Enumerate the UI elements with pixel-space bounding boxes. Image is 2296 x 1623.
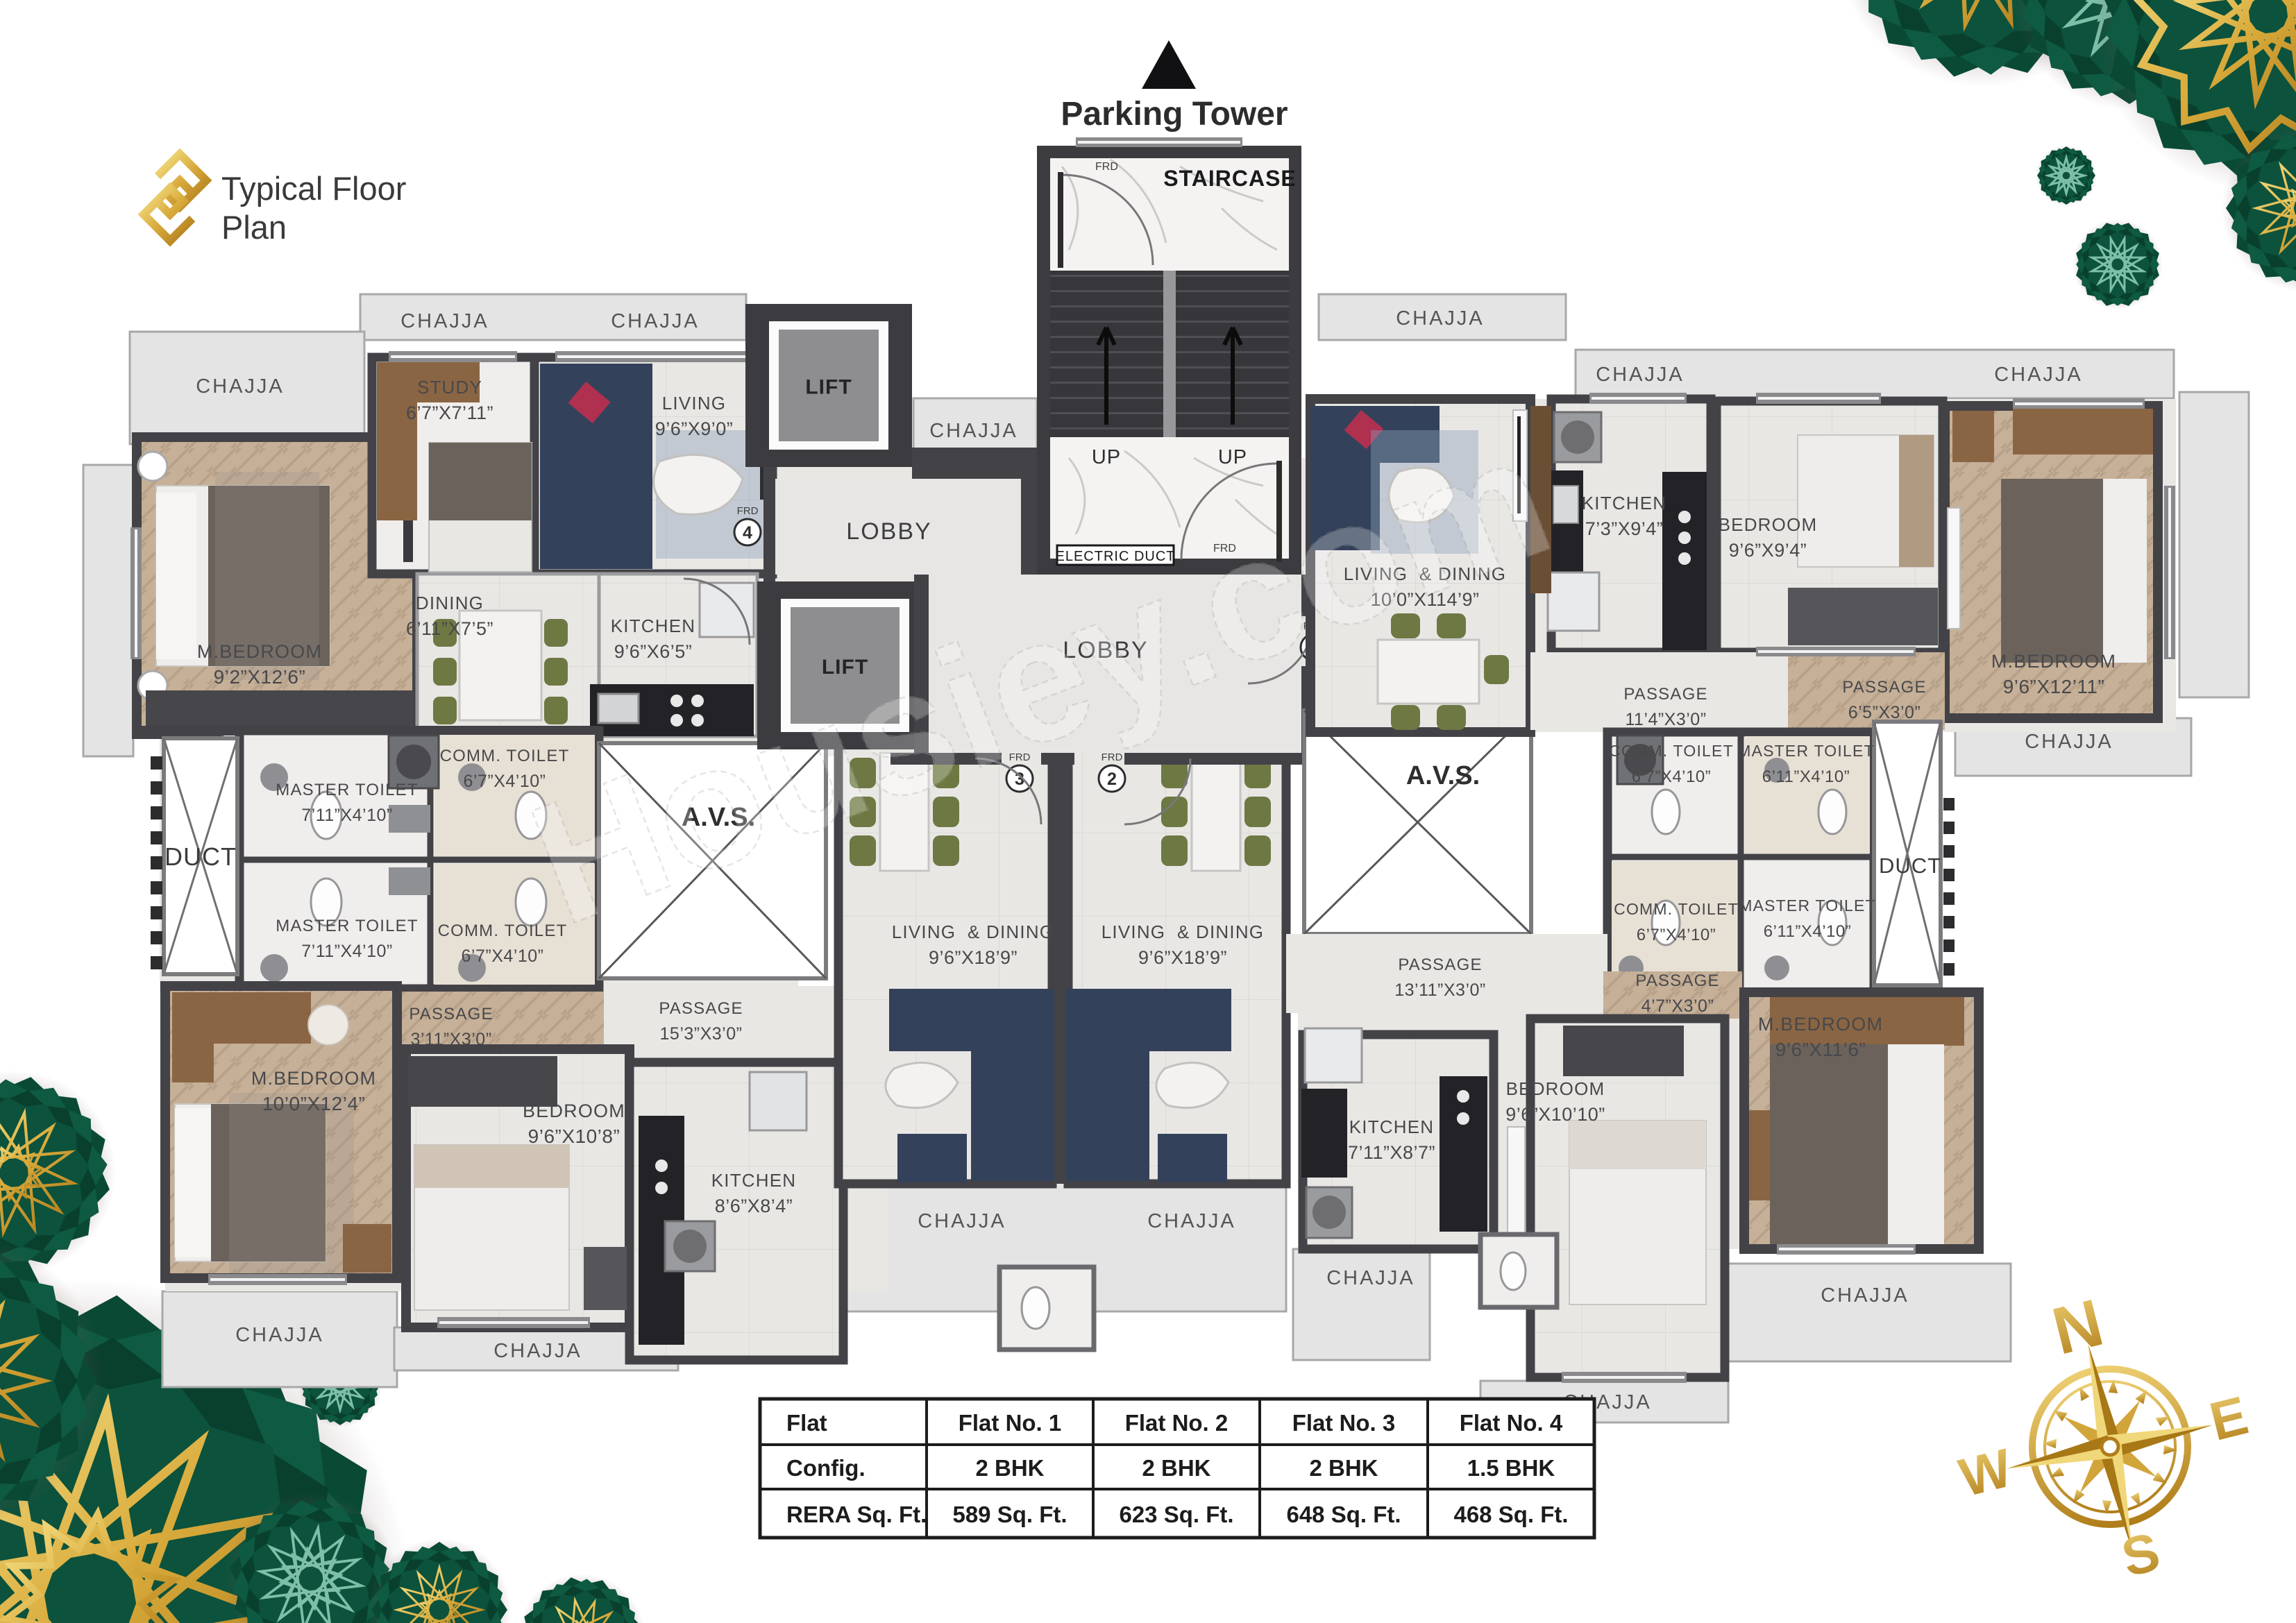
svg-text:BEDROOM: BEDROOM [1506, 1078, 1605, 1099]
svg-text:7’11”X8’7”: 7’11”X8’7” [1348, 1142, 1435, 1163]
svg-text:KITCHEN: KITCHEN [711, 1170, 797, 1191]
svg-text:9’6”X10’8”: 9’6”X10’8” [528, 1125, 621, 1147]
svg-text:RERA Sq. Ft.: RERA Sq. Ft. [786, 1502, 927, 1527]
svg-text:2 BHK: 2 BHK [1309, 1455, 1378, 1481]
svg-text:3’11”X3’0”: 3’11”X3’0” [410, 1030, 491, 1049]
svg-text:CHAJJA: CHAJJA [1147, 1210, 1236, 1232]
svg-text:9’6”X6’5”: 9’6”X6’5” [614, 641, 693, 662]
svg-text:CHAJJA: CHAJJA [235, 1324, 324, 1346]
svg-text:LIVING & DINING: LIVING & DINING [1101, 921, 1264, 942]
svg-text:FRD: FRD [737, 505, 759, 517]
svg-text:PASSAGE: PASSAGE [409, 1005, 493, 1023]
svg-text:Parking Tower: Parking Tower [1061, 96, 1288, 133]
svg-text:6’7”X4’10”: 6’7”X4’10” [1632, 767, 1711, 786]
svg-text:DUCT: DUCT [1879, 853, 1941, 878]
svg-text:COMM. TOILET: COMM. TOILET [1614, 900, 1739, 918]
svg-text:6’11”X7’5”: 6’11”X7’5” [406, 618, 493, 639]
svg-text:M.BEDROOM: M.BEDROOM [1991, 651, 2116, 672]
svg-text:STAIRCASE: STAIRCASE [1163, 166, 1297, 191]
svg-text:Flat No. 1: Flat No. 1 [959, 1410, 1062, 1436]
svg-text:COMM. TOILET: COMM. TOILET [1609, 742, 1734, 760]
svg-text:CHAJJA: CHAJJA [1326, 1267, 1415, 1289]
svg-text:CHAJJA: CHAJJA [929, 420, 1018, 442]
svg-text:LIVING & DINING: LIVING & DINING [892, 921, 1054, 942]
svg-text:MASTER TOILET: MASTER TOILET [1739, 897, 1876, 915]
svg-text:LIFT: LIFT [805, 376, 852, 399]
svg-text:9’6”X9’0”: 9’6”X9’0” [655, 418, 734, 439]
svg-text:9’6”X18’9”: 9’6”X18’9” [929, 947, 1018, 968]
svg-text:Plan: Plan [221, 209, 287, 246]
svg-text:PASSAGE: PASSAGE [1635, 971, 1719, 990]
svg-text:CHAJJA: CHAJJA [196, 375, 285, 398]
svg-text:623 Sq. Ft.: 623 Sq. Ft. [1119, 1502, 1233, 1527]
svg-text:9’6”X11’6”: 9’6”X11’6” [1775, 1039, 1866, 1060]
svg-text:9’6”X9’4”: 9’6”X9’4” [1729, 540, 1807, 561]
svg-text:648 Sq. Ft.: 648 Sq. Ft. [1286, 1502, 1401, 1527]
svg-text:6’7”X4’10”: 6’7”X4’10” [462, 946, 544, 966]
svg-text:PASSAGE: PASSAGE [1398, 955, 1482, 974]
svg-text:COMM. TOILET: COMM. TOILET [438, 921, 568, 940]
svg-text:CHAJJA: CHAJJA [1821, 1284, 1909, 1307]
svg-text:11’4”X3’0”: 11’4”X3’0” [1625, 710, 1706, 729]
svg-text:8’6”X8’4”: 8’6”X8’4” [715, 1196, 793, 1216]
svg-text:COMM. TOILET: COMM. TOILET [440, 747, 570, 765]
svg-text:7’3”X9’4”: 7’3”X9’4” [1585, 518, 1664, 539]
svg-text:CHAJJA: CHAJJA [1596, 364, 1685, 386]
svg-text:STUDY: STUDY [417, 377, 482, 398]
svg-text:6’11”X4’10”: 6’11”X4’10” [1762, 767, 1850, 786]
svg-text:CHAJJA: CHAJJA [1994, 364, 2083, 386]
svg-text:10’0”X12’4”: 10’0”X12’4” [262, 1093, 366, 1114]
svg-text:CHAJJA: CHAJJA [2025, 731, 2113, 753]
svg-text:Flat No. 3: Flat No. 3 [1292, 1410, 1396, 1436]
svg-text:MASTER TOILET: MASTER TOILET [276, 781, 418, 799]
svg-text:4’7”X3’0”: 4’7”X3’0” [1641, 996, 1714, 1016]
svg-text:Config.: Config. [786, 1455, 866, 1481]
svg-text:M.BEDROOM: M.BEDROOM [197, 641, 322, 662]
svg-text:M.BEDROOM: M.BEDROOM [1758, 1014, 1883, 1035]
svg-text:DINING: DINING [416, 593, 484, 613]
svg-text:6’11”X4’10”: 6’11”X4’10” [1764, 922, 1851, 941]
svg-text:589 Sq. Ft.: 589 Sq. Ft. [952, 1502, 1067, 1527]
svg-text:KITCHEN: KITCHEN [1582, 493, 1667, 513]
svg-text:BEDROOM: BEDROOM [523, 1101, 625, 1121]
svg-text:Typical Floor: Typical Floor [221, 170, 406, 207]
svg-text:KITCHEN: KITCHEN [611, 615, 696, 636]
svg-text:MASTER TOILET: MASTER TOILET [1737, 742, 1875, 760]
svg-text:Flat: Flat [786, 1410, 827, 1436]
svg-text:DUCT: DUCT [164, 842, 237, 871]
svg-text:PASSAGE: PASSAGE [1842, 678, 1926, 697]
svg-text:2 BHK: 2 BHK [975, 1455, 1044, 1481]
svg-text:CHAJJA: CHAJJA [493, 1340, 582, 1362]
svg-text:7’11”X4’10”: 7’11”X4’10” [301, 806, 393, 825]
svg-text:468 Sq. Ft.: 468 Sq. Ft. [1453, 1502, 1568, 1527]
svg-text:CHAJJA: CHAJJA [1396, 307, 1485, 330]
svg-text:Flat No. 2: Flat No. 2 [1125, 1410, 1229, 1436]
svg-text:BEDROOM: BEDROOM [1719, 514, 1818, 535]
svg-text:M.BEDROOM: M.BEDROOM [251, 1068, 376, 1089]
svg-text:6’7”X7’11”: 6’7”X7’11” [406, 402, 493, 423]
svg-text:7’11”X4’10”: 7’11”X4’10” [301, 942, 393, 961]
svg-text:13’11”X3’0”: 13’11”X3’0” [1394, 980, 1486, 1000]
svg-text:9’6”X12’11”: 9’6”X12’11” [2003, 676, 2105, 697]
svg-text:9’6”X10’10”: 9’6”X10’10” [1505, 1104, 1605, 1125]
svg-text:MASTER TOILET: MASTER TOILET [276, 917, 418, 935]
svg-text:A.V.S.: A.V.S. [1406, 761, 1480, 790]
svg-text:FRD: FRD [1095, 161, 1118, 173]
svg-text:CHAJJA: CHAJJA [918, 1210, 1006, 1232]
svg-text:CHAJJA: CHAJJA [400, 310, 489, 332]
svg-text:4: 4 [743, 523, 752, 543]
svg-text:PASSAGE: PASSAGE [659, 999, 743, 1018]
svg-text:KITCHEN: KITCHEN [1349, 1116, 1435, 1137]
svg-text:1.5 BHK: 1.5 BHK [1467, 1455, 1555, 1481]
svg-text:15’3”X3’0”: 15’3”X3’0” [660, 1024, 743, 1044]
svg-text:6’7”X4’10”: 6’7”X4’10” [1637, 926, 1716, 944]
svg-text:9’6”X18’9”: 9’6”X18’9” [1138, 947, 1227, 968]
svg-text:2: 2 [1107, 770, 1117, 789]
svg-text:UP: UP [1092, 446, 1121, 468]
svg-text:Flat No. 4: Flat No. 4 [1460, 1410, 1563, 1436]
svg-text:CHAJJA: CHAJJA [611, 310, 700, 332]
svg-text:LOBBY: LOBBY [846, 518, 931, 545]
svg-text:PASSAGE: PASSAGE [1623, 685, 1707, 704]
svg-text:2 BHK: 2 BHK [1142, 1455, 1210, 1481]
svg-text:9’2”X12’6”: 9’2”X12’6” [214, 666, 306, 688]
svg-text:6’5”X3’0”: 6’5”X3’0” [1848, 703, 1921, 722]
svg-text:LIVING: LIVING [662, 393, 726, 414]
svg-text:UP: UP [1218, 446, 1247, 468]
